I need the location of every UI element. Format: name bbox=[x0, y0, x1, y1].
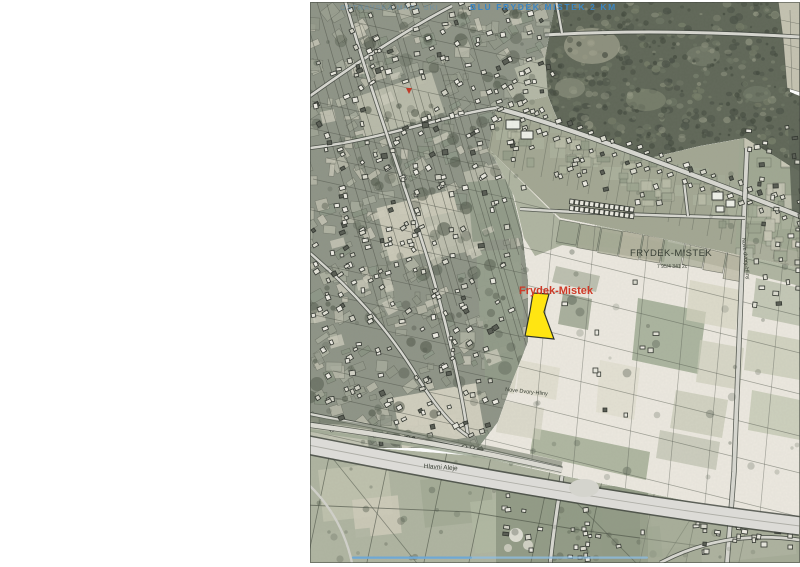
svg-text:7 95/4 341 2c: 7 95/4 341 2c bbox=[657, 264, 688, 270]
svg-text:FRYDEK-MISTEK: FRYDEK-MISTEK bbox=[630, 248, 712, 259]
svg-text:OSTRAVSKA MAPA SKI: OSTRAVSKA MAPA SKI bbox=[340, 3, 439, 12]
svg-text:BLU FRYDEK MISTEK 2 KM: BLU FRYDEK MISTEK 2 KM bbox=[470, 2, 617, 12]
svg-text:Frydek-Mistek: Frydek-Mistek bbox=[519, 285, 594, 297]
